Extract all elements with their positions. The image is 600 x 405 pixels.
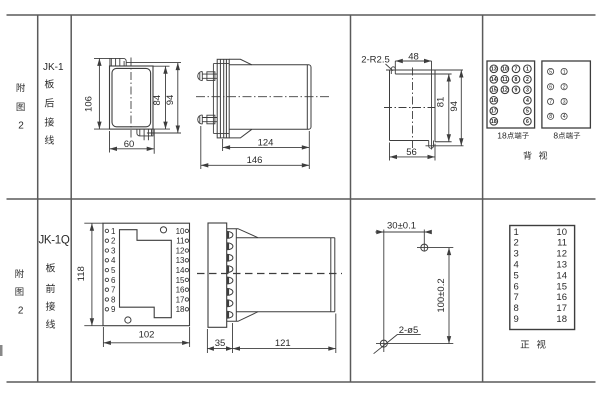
svg-text:8: 8 bbox=[553, 130, 558, 140]
svg-text:3: 3 bbox=[563, 99, 566, 105]
svg-text:100±0.2: 100±0.2 bbox=[436, 278, 447, 312]
svg-text:18: 18 bbox=[556, 314, 567, 325]
svg-text:4: 4 bbox=[514, 260, 519, 271]
svg-text:11: 11 bbox=[176, 237, 185, 246]
svg-text:2: 2 bbox=[18, 306, 24, 317]
svg-text:7: 7 bbox=[514, 292, 519, 303]
svg-text:1: 1 bbox=[526, 67, 529, 73]
svg-text:12: 12 bbox=[502, 88, 508, 94]
svg-text:11: 11 bbox=[557, 238, 567, 249]
svg-text:8: 8 bbox=[111, 295, 116, 304]
svg-text:94: 94 bbox=[449, 101, 460, 112]
svg-text:48: 48 bbox=[408, 52, 419, 63]
svg-text:11: 11 bbox=[502, 77, 508, 83]
svg-text:18: 18 bbox=[176, 305, 185, 314]
svg-text:2: 2 bbox=[526, 77, 529, 83]
svg-text:5: 5 bbox=[526, 109, 529, 115]
svg-text:8: 8 bbox=[549, 114, 552, 120]
svg-text:15: 15 bbox=[491, 88, 497, 94]
svg-text:6: 6 bbox=[526, 119, 529, 125]
svg-text:18: 18 bbox=[497, 130, 507, 140]
svg-text:2-ø5: 2-ø5 bbox=[399, 325, 419, 336]
svg-text:5: 5 bbox=[549, 69, 552, 75]
svg-text:146: 146 bbox=[247, 155, 263, 166]
svg-text:56: 56 bbox=[406, 147, 417, 158]
svg-text:13: 13 bbox=[556, 260, 567, 271]
svg-text:4: 4 bbox=[111, 256, 116, 265]
svg-text:16: 16 bbox=[491, 98, 497, 104]
svg-text:10: 10 bbox=[502, 67, 508, 73]
svg-text:13: 13 bbox=[491, 67, 497, 73]
svg-text:JK-1Q: JK-1Q bbox=[38, 234, 69, 246]
svg-text:7: 7 bbox=[549, 99, 552, 105]
svg-text:17: 17 bbox=[176, 295, 185, 304]
svg-text:6: 6 bbox=[514, 281, 519, 292]
svg-text:3: 3 bbox=[526, 88, 529, 94]
svg-text:124: 124 bbox=[258, 137, 274, 148]
svg-text:2: 2 bbox=[514, 238, 519, 249]
svg-text:16: 16 bbox=[176, 286, 185, 295]
svg-text:2: 2 bbox=[111, 237, 116, 246]
svg-text:1: 1 bbox=[111, 227, 116, 236]
svg-text:13: 13 bbox=[176, 256, 185, 265]
svg-text:106: 106 bbox=[84, 96, 95, 112]
svg-text:4: 4 bbox=[563, 114, 566, 120]
svg-text:94: 94 bbox=[165, 95, 176, 106]
svg-text:8: 8 bbox=[515, 77, 518, 83]
svg-text:15: 15 bbox=[176, 276, 185, 285]
svg-text:6: 6 bbox=[111, 276, 116, 285]
svg-text:102: 102 bbox=[139, 330, 155, 341]
svg-text:15: 15 bbox=[556, 281, 567, 292]
svg-text:10: 10 bbox=[556, 227, 567, 238]
svg-text:14: 14 bbox=[556, 270, 567, 281]
svg-text:3: 3 bbox=[111, 246, 116, 255]
svg-text:16: 16 bbox=[556, 292, 567, 303]
svg-text:2-R2.5: 2-R2.5 bbox=[361, 55, 390, 66]
svg-text:81: 81 bbox=[435, 97, 446, 108]
svg-text:JK-1: JK-1 bbox=[43, 62, 64, 73]
svg-text:7: 7 bbox=[515, 67, 518, 73]
svg-text:17: 17 bbox=[491, 109, 497, 115]
svg-text:12: 12 bbox=[176, 246, 185, 255]
svg-text:1: 1 bbox=[563, 69, 566, 75]
svg-text:30±0.1: 30±0.1 bbox=[387, 221, 416, 232]
svg-text:1: 1 bbox=[514, 227, 519, 238]
svg-text:5: 5 bbox=[111, 266, 116, 275]
svg-text:60: 60 bbox=[124, 139, 135, 150]
svg-text:14: 14 bbox=[491, 77, 497, 83]
svg-text:12: 12 bbox=[556, 249, 567, 260]
svg-text:118: 118 bbox=[76, 266, 87, 281]
svg-text:3: 3 bbox=[514, 249, 519, 260]
svg-text:8: 8 bbox=[514, 303, 519, 314]
svg-text:2: 2 bbox=[18, 120, 24, 131]
svg-text:35: 35 bbox=[215, 338, 226, 349]
svg-text:17: 17 bbox=[556, 303, 567, 314]
svg-text:84: 84 bbox=[152, 95, 163, 106]
svg-text:14: 14 bbox=[176, 266, 185, 275]
svg-text:9: 9 bbox=[111, 305, 116, 314]
svg-text:7: 7 bbox=[111, 286, 116, 295]
svg-text:2: 2 bbox=[563, 85, 566, 91]
svg-text:6: 6 bbox=[549, 85, 552, 91]
svg-text:10: 10 bbox=[176, 227, 185, 236]
svg-text:9: 9 bbox=[515, 88, 518, 94]
svg-text:5: 5 bbox=[514, 270, 519, 281]
svg-text:4: 4 bbox=[526, 98, 529, 104]
svg-text:18: 18 bbox=[491, 119, 497, 125]
svg-text:9: 9 bbox=[514, 314, 519, 325]
svg-text:121: 121 bbox=[275, 338, 291, 349]
